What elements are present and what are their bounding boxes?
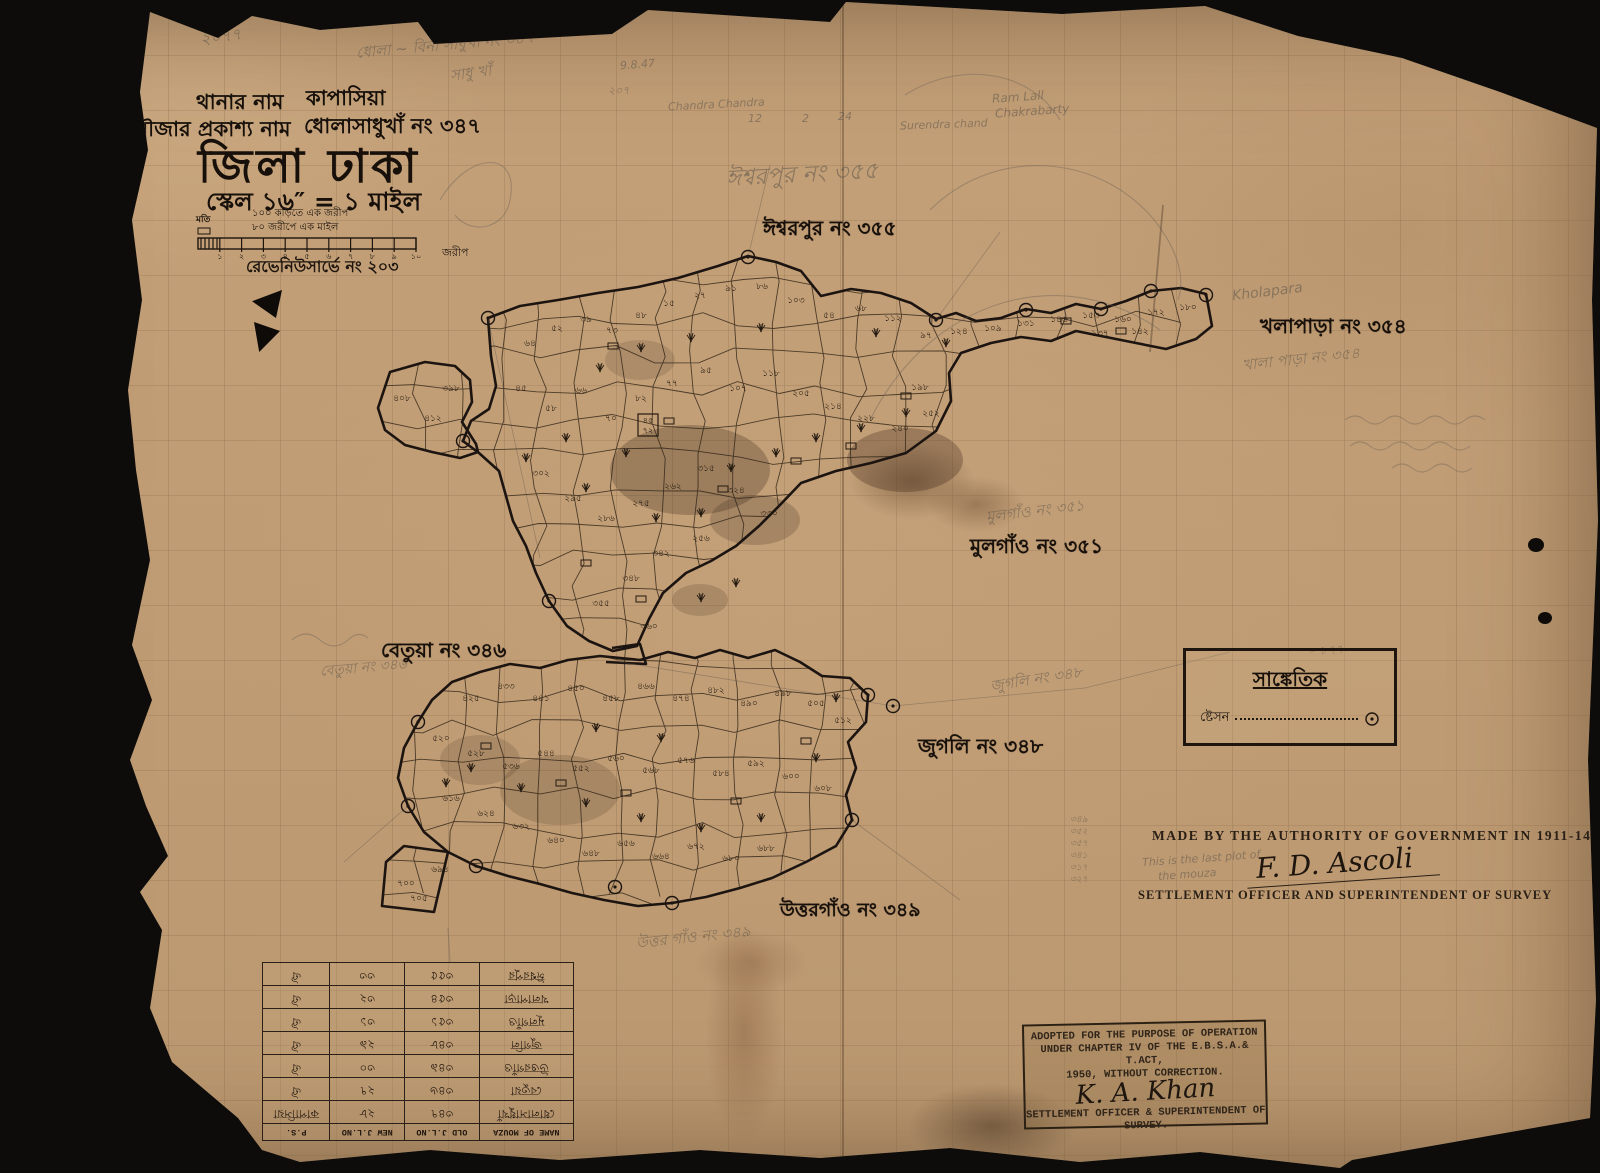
plot-number: ৩১৫ — [697, 464, 715, 474]
tree-icon — [582, 483, 590, 492]
adoption-stamp: ADOPTED FOR THE PURPOSE OF OPERATION UND… — [1022, 1019, 1268, 1129]
plot-number: ৩২৪ — [727, 486, 745, 496]
table-cell: ৩৫৫ — [405, 963, 480, 986]
tree-icon — [732, 578, 740, 587]
tree-icon — [596, 363, 604, 372]
hut-icon — [1116, 328, 1126, 334]
table-cell: ৩৩ — [330, 963, 405, 986]
table-header-cell: NAME OF MOUZA — [479, 1124, 573, 1141]
plot-number: ৪২৫ — [462, 694, 480, 704]
table-row: মূলগাঁও৩৫১৩১ঐ — [263, 1009, 574, 1032]
plot-number: ৬৬ — [575, 386, 587, 396]
scanned-map-sheet: থানার নাম কাপাসিয়া মৌজার প্রকাশ্য নাম ধ… — [0, 0, 1600, 1173]
plot-number: ১০৩ — [787, 296, 805, 306]
plot-number: ৪৪১ — [532, 694, 550, 704]
table-cell: ২৭ — [330, 1078, 405, 1101]
plot-number: ২৭৫ — [632, 499, 650, 509]
plot-number: ১৬০ — [1114, 315, 1132, 325]
plot-number: ৪৫ — [515, 384, 527, 394]
plot-number: ৫৯২ — [747, 759, 765, 769]
plot-number: ৩০২ — [532, 469, 550, 479]
pencil-annotation: 2 — [802, 112, 809, 125]
plot-number: ৫২০ — [432, 734, 450, 744]
svg-text:৪৫: ৪৫ — [643, 416, 653, 425]
pencil-annotation: ২০৭ — [608, 82, 629, 101]
plot-number: ৬৯৪ — [431, 865, 449, 875]
plot-number: ৩৬০ — [640, 622, 658, 632]
plot-number: ৫৪ — [823, 311, 835, 321]
tree-icon — [652, 513, 660, 522]
mouza-index-table: NAME OF MOUZAOLD J.L.NONEW J.L.NOP.S.ধোল… — [262, 962, 574, 1141]
survey-station-icon — [609, 881, 622, 894]
tree-icon — [772, 448, 780, 457]
table-cell: জুগলি — [479, 1032, 573, 1055]
region-label: খলাপাড়া নং ৩৫৪ — [1260, 312, 1407, 345]
region-label: উত্তরগাঁও নং ৩৪৯ — [780, 896, 921, 928]
table-cell: ৩৪৬ — [405, 1078, 480, 1101]
survey-station-icon — [470, 860, 483, 873]
tree-icon — [442, 778, 450, 787]
plot-number: ৭৭ — [666, 379, 678, 389]
plot-number: ৩৯৮ — [442, 384, 460, 394]
plot-number: ২৬২ — [664, 482, 682, 492]
table-header-cell: P.S. — [263, 1124, 330, 1141]
table-row: খলাপাড়া৩৫৪৩২ঐ — [263, 986, 574, 1009]
table-row: ঈশ্বরপুর৩৫৫৩৩ঐ — [263, 963, 574, 986]
plot-number: ৬০০ — [782, 772, 800, 782]
plot-number: ১৮০ — [1179, 303, 1197, 313]
legend-dotted-leader — [1235, 717, 1358, 720]
tree-icon — [562, 433, 570, 442]
settlement-officer-line: SETTLEMENT OFFICER AND SUPERINTENDENT OF… — [1138, 888, 1552, 903]
plot-number: ১১৮ — [762, 369, 780, 379]
tree-icon — [872, 328, 880, 337]
plot-number: ৯৭ — [920, 331, 932, 341]
plot-number: ৬৮০ — [722, 854, 740, 864]
plot-number: ৬০৮ — [814, 784, 832, 794]
tree-icon — [687, 333, 695, 342]
table-cell: ৩৪৮ — [405, 1032, 480, 1055]
plot-number: ৫৪৪ — [537, 749, 555, 759]
table-cell: ২৮ — [330, 1101, 405, 1124]
plot-number: ৫৬০ — [607, 754, 625, 764]
plot-number: ৩৪৮ — [622, 574, 640, 584]
table-cell: ৩৫১ — [405, 1009, 480, 1032]
table-header-cell: OLD J.L.NO — [405, 1124, 480, 1141]
table-header-cell: NEW J.L.NO — [330, 1124, 405, 1141]
plot-number: ১৫ — [663, 299, 675, 309]
plot-number: ৩৫৫ — [592, 599, 610, 609]
plot-number: ৭০০ — [397, 879, 415, 889]
table-cell: ৩১ — [330, 1009, 405, 1032]
plot-number: ৭০৫ — [410, 894, 428, 904]
station-circled-dot-icon — [1364, 711, 1380, 727]
tree-icon — [522, 453, 530, 462]
table-cell: কাপাসিয়া — [263, 1101, 330, 1124]
plot-number: ৪৫০ — [567, 684, 585, 694]
pencil-annotation: 24 — [838, 110, 852, 123]
tree-icon — [757, 813, 765, 822]
plot-number: ৬৪০ — [547, 836, 565, 846]
pencil-annotation: ৩২৭ — [1070, 872, 1088, 887]
plot-number: ৬৮ — [855, 304, 867, 314]
plot-number: ৪৮২ — [707, 686, 725, 696]
table-row: জুগলি৩৪৮২৯ঐ — [263, 1032, 574, 1055]
plot-number: ২৫৬ — [692, 534, 710, 544]
pencil-annotation: 12 — [748, 112, 762, 125]
plot-number: ৬৪ — [524, 339, 536, 349]
plot-number: ১৭২ — [1147, 308, 1165, 318]
table-cell: উত্তরগাঁও — [479, 1055, 573, 1078]
plot-number: ৪০৮ — [393, 394, 411, 404]
plot-number: ২১৪ — [824, 402, 842, 412]
table-cell: ৩৫৪ — [405, 986, 480, 1009]
plot-number: ১১২ — [884, 314, 902, 324]
plot-number: ৪৭৪ — [672, 694, 690, 704]
plot-number: ৫৬৮ — [642, 766, 660, 776]
plot-number: ৬১৬ — [442, 794, 460, 804]
plot-number: ৩৯ — [580, 315, 592, 325]
plot-number: ৫২৮ — [467, 749, 485, 759]
plot-number: ৬৬৪ — [652, 852, 670, 862]
plot-number: ৮২ — [635, 394, 647, 404]
plot-number: ১৯৮ — [911, 383, 929, 393]
table-cell: ২৯ — [330, 1032, 405, 1055]
tree-icon — [592, 723, 600, 732]
plot-number: ৬২৪ — [477, 809, 495, 819]
table-cell: ৩৪৭ — [405, 1101, 480, 1124]
hut-icon — [636, 596, 646, 602]
plot-number: ৫৩৬ — [502, 762, 520, 772]
hut-icon — [801, 738, 811, 744]
plot-number: ১২৪ — [950, 327, 968, 337]
region-label: ঈশ্বরপুর নং ৩৫৫ — [763, 214, 896, 247]
survey-station-icon — [402, 800, 415, 813]
plot-number: ৪১২ — [424, 414, 442, 424]
plot-number: ৪৩৩ — [497, 682, 515, 692]
tree-icon — [812, 433, 820, 442]
plot-number: ৬৫৬ — [617, 839, 635, 849]
plot-number: ৬৮৮ — [757, 844, 775, 854]
table-cell: ঐ — [263, 1009, 330, 1032]
plot-number: ২৫২ — [922, 409, 940, 419]
plot-number: ১৪২ — [1131, 327, 1149, 337]
plot-number: ৪৯৮ — [774, 689, 792, 699]
plot-number: ১০৭ — [729, 384, 747, 394]
plot-number: ৯১ — [725, 284, 737, 294]
legend-box: সাঙ্কেতিক ষ্টেসন — [1183, 648, 1397, 746]
plot-number: ৩৩০ — [760, 509, 778, 519]
table-row: ধোলাসাধুখাঁ৩৪৭২৮কাপাসিয়া — [263, 1101, 574, 1124]
table-cell: বেতুয়া — [479, 1078, 573, 1101]
plot-number: ৫১২ — [834, 716, 852, 726]
table-cell: ঐ — [263, 1055, 330, 1078]
table-cell: খলাপাড়া — [479, 986, 573, 1009]
tree-icon — [812, 753, 820, 762]
pencil-annotation: 9.8.47 — [620, 57, 656, 72]
tree-icon — [857, 423, 865, 432]
tree-icon — [942, 338, 950, 347]
svg-text:৭২: ৭২ — [643, 426, 653, 435]
table-row: উত্তরগাঁও৩৪৯৩০ঐ — [263, 1055, 574, 1078]
plot-number: ১৩১ — [1017, 319, 1035, 329]
plot-number: ৪৯০ — [740, 699, 758, 709]
plot-number: ৩৪২ — [652, 549, 670, 559]
plot-number: ২৪০ — [891, 424, 909, 434]
map-paper: থানার নাম কাপাসিয়া মৌজার প্রকাশ্য নাম ধ… — [0, 0, 1600, 1173]
table-cell: মূলগাঁও — [479, 1009, 573, 1032]
plot-number: ৬৩২ — [512, 822, 530, 832]
tree-icon — [637, 813, 645, 822]
plot-number: ৭৩ — [606, 326, 618, 336]
table-cell: ঈশ্বরপুর — [479, 963, 573, 986]
plot-number: ২২৮ — [857, 414, 875, 424]
hut-icon — [664, 418, 674, 424]
plot-number: ২৮৬ — [597, 514, 615, 524]
legend-title: সাঙ্কেতিক — [1186, 665, 1394, 698]
plot-number: ২৭ — [694, 291, 706, 301]
table-cell: ৩২ — [330, 986, 405, 1009]
plot-number: ৬৭২ — [687, 842, 705, 852]
plot-number: ১৫৩ — [1082, 311, 1100, 321]
tree-icon — [902, 408, 910, 417]
hut-icon — [581, 560, 591, 566]
plot-number: ১০৯ — [984, 324, 1002, 334]
legend-station-label: ষ্টেসন — [1200, 708, 1229, 729]
plot-number: ৭০ — [605, 414, 617, 424]
table-cell: ঐ — [263, 1078, 330, 1101]
table-cell: ৩০ — [330, 1055, 405, 1078]
legend-station-row: ষ্টেসন — [1200, 708, 1380, 729]
plot-number: ৪৫৮ — [602, 694, 620, 704]
table-cell: ঐ — [263, 963, 330, 986]
plot-number: ৪৬৬ — [637, 682, 655, 692]
plot-number: ২০৫ — [792, 389, 810, 399]
plot-number: ৬৪৮ — [582, 849, 600, 859]
plot-number: ৮৬ — [756, 282, 768, 292]
table-cell: ৩৪৯ — [405, 1055, 480, 1078]
plot-number: ৪৮ — [635, 311, 647, 321]
plot-number: ৫৫২ — [572, 764, 590, 774]
table-cell: ঐ — [263, 986, 330, 1009]
plot-number: ২৯৫ — [564, 494, 582, 504]
survey-station-icon — [412, 716, 425, 729]
survey-station-icon — [887, 700, 900, 713]
region-label: জুগলি নং ৩৪৮ — [918, 732, 1043, 765]
table-cell: ঐ — [263, 1032, 330, 1055]
pencil-annotation: ঈশ্বরপুর নং ৩৫৫ — [725, 152, 879, 199]
survey-station-icon — [543, 595, 556, 608]
authority-line: MADE BY THE AUTHORITY OF GOVERNMENT IN 1… — [1152, 828, 1591, 844]
plot-number: ৫৭৬ — [677, 756, 695, 766]
table-row: বেতুয়া৩৪৬২৭ঐ — [263, 1078, 574, 1101]
survey-station-icon — [457, 435, 470, 448]
plot-number: ৫০৫ — [807, 699, 825, 709]
table-cell: ধোলাসাধুখাঁ — [479, 1101, 573, 1124]
plot-number: ৫২ — [551, 324, 563, 334]
plot-number: ৫৮ — [545, 404, 557, 414]
region-label: মুলগাঁও নং ৩৫১ — [970, 532, 1103, 565]
pencil-annotation: ২০৭৭ — [198, 21, 243, 54]
plot-number: ১৩৭ — [1091, 329, 1109, 339]
plot-number: ৫৮৪ — [712, 769, 730, 779]
plot-number: ৯৫ — [700, 366, 712, 376]
